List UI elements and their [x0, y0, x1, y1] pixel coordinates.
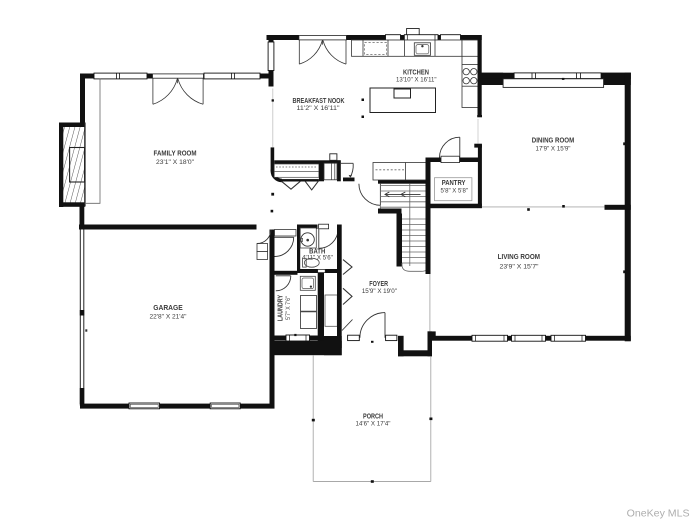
svg-text:22'8" X 21'4": 22'8" X 21'4"	[150, 314, 187, 321]
svg-text:LAUNDRY: LAUNDRY	[277, 295, 284, 322]
svg-text:FAMILY ROOM: FAMILY ROOM	[154, 150, 197, 157]
svg-text:11'2" X 16'11": 11'2" X 16'11"	[297, 105, 340, 112]
svg-text:OneKey MLS: OneKey MLS	[627, 508, 690, 519]
svg-text:KITCHEN: KITCHEN	[403, 69, 429, 76]
svg-text:GARAGE: GARAGE	[153, 305, 183, 312]
svg-text:DINING ROOM: DINING ROOM	[532, 137, 575, 144]
svg-text:23'1" X 18'0": 23'1" X 18'0"	[156, 159, 194, 166]
svg-text:5'8" X 5'8": 5'8" X 5'8"	[441, 187, 469, 194]
svg-text:4'11" X 5'6": 4'11" X 5'6"	[302, 255, 333, 262]
svg-text:5'7" X 7'6": 5'7" X 7'6"	[285, 296, 292, 320]
svg-text:PORCH: PORCH	[363, 413, 383, 420]
svg-text:17'9" X 15'9": 17'9" X 15'9"	[536, 145, 571, 152]
svg-text:PANTRY: PANTRY	[442, 180, 466, 187]
svg-text:23'9" X 15'7": 23'9" X 15'7"	[500, 264, 539, 271]
svg-text:BREAKFAST NOOK: BREAKFAST NOOK	[293, 98, 345, 105]
svg-text:13'10" X 16'11": 13'10" X 16'11"	[396, 77, 437, 84]
svg-text:14'6" X 17'4": 14'6" X 17'4"	[356, 421, 391, 428]
svg-text:15'9" X 19'0": 15'9" X 19'0"	[362, 288, 397, 295]
svg-text:LIVING ROOM: LIVING ROOM	[498, 254, 541, 261]
